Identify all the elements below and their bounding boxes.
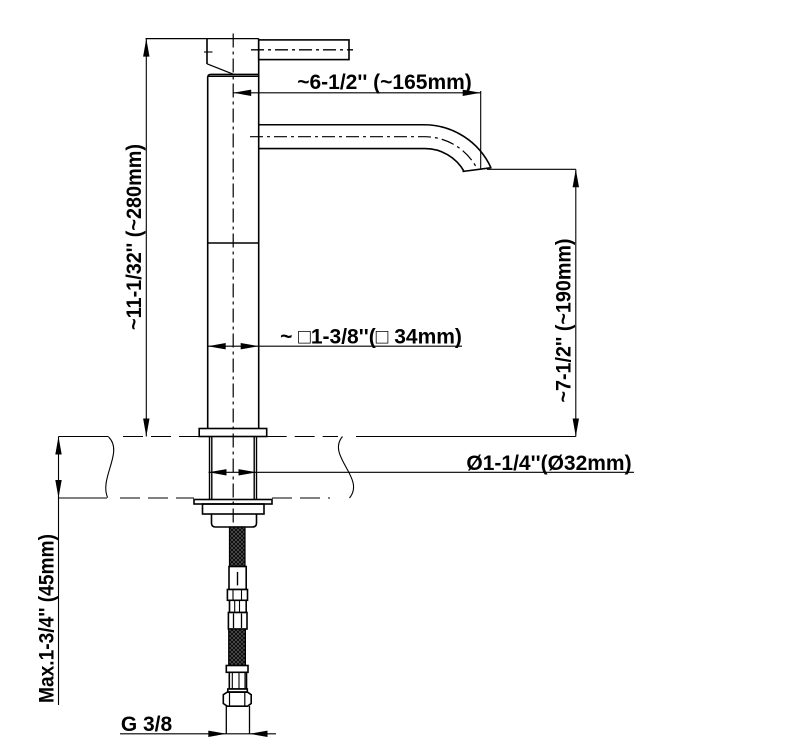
svg-text:Max.1-3/4'' (45mm): Max.1-3/4'' (45mm) <box>36 534 59 703</box>
svg-text:~ □1-3/8''(□ 34mm): ~ □1-3/8''(□ 34mm) <box>280 326 462 349</box>
svg-text:G 3/8: G 3/8 <box>121 713 173 736</box>
svg-text:Ø1-1/4''(Ø32mm): Ø1-1/4''(Ø32mm) <box>466 452 631 475</box>
svg-text:~11-1/32'' (~280mm): ~11-1/32'' (~280mm) <box>123 144 146 330</box>
svg-text:~7-1/2'' (~190mm): ~7-1/2'' (~190mm) <box>553 239 576 403</box>
svg-text:~6-1/2'' (~165mm): ~6-1/2'' (~165mm) <box>297 71 472 94</box>
